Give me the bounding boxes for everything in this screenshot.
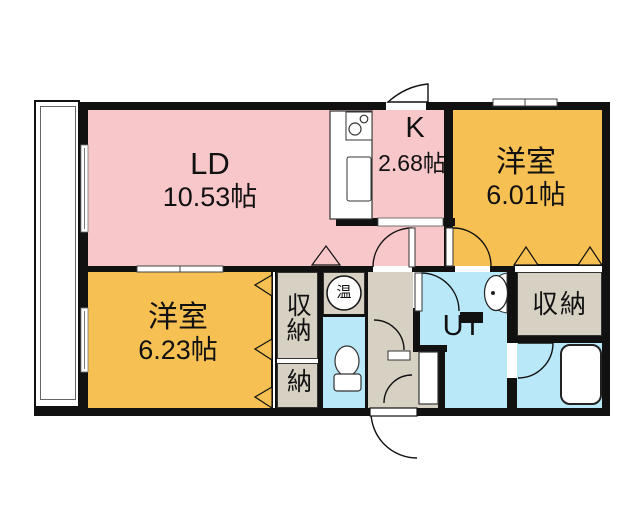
wall-top: [80, 102, 610, 110]
room-size-ld: 10.53帖: [130, 182, 290, 212]
label-bedroom-right: 洋室 6.01帖: [452, 146, 600, 210]
wall-hall-ut: [413, 308, 420, 348]
closet-left-front: [271, 272, 277, 408]
floor-plan: LD 10.53帖 K 2.68帖 洋室 6.01帖 洋室 6.23帖 収納 納…: [0, 0, 640, 512]
wall-right: [602, 102, 610, 416]
kitchen-service-door-gap: [386, 102, 426, 110]
label-ut: UT: [432, 310, 492, 342]
front-door-arc: [371, 412, 417, 458]
room-size-bedroom-left: 6.23帖: [96, 335, 260, 365]
floor-toilet: [323, 316, 365, 408]
wall-kitchen-stub-right: [443, 218, 455, 226]
floor-bathroom: [517, 343, 602, 408]
wall-left: [80, 102, 88, 416]
label-closet-left-tall: 収納: [284, 281, 309, 353]
wall-entrance-h: [413, 345, 447, 352]
wall-divider-a: [88, 266, 137, 272]
wall-heater-bottom: [323, 314, 365, 317]
room-name-bedroom-right: 洋室: [452, 146, 600, 180]
wall-divider-b: [223, 266, 373, 272]
room-name-ld: LD: [130, 147, 290, 182]
wall-x318: [318, 272, 323, 408]
wall-x365: [365, 272, 368, 408]
label-bedroom-left: 洋室 6.23帖: [96, 301, 260, 365]
label-kitchen: K: [385, 112, 445, 144]
wall-kitchen-stub-left: [336, 218, 378, 226]
wall-bottom: [34, 408, 610, 416]
label-ld: LD 10.53帖: [130, 147, 290, 212]
balcony-inner: [40, 106, 76, 400]
floor-entrance: [405, 348, 438, 408]
room-name-bedroom-left: 洋室: [96, 301, 260, 335]
closet-right-front-line: [514, 264, 602, 266]
label-water-heater: 温: [329, 285, 359, 302]
wall-entrance-v: [438, 352, 445, 408]
bathroom-door-gap: [507, 343, 517, 378]
wall-ut-bath: [507, 272, 517, 408]
kitchen-service-door-icon: [388, 84, 428, 102]
floor-ut-lower: [445, 348, 507, 408]
wall-closet-bath: [517, 336, 602, 343]
room-size-bedroom-right: 6.01帖: [452, 180, 600, 210]
label-kitchen-size: 2.68帖: [370, 151, 454, 177]
label-closet-right: 収納: [517, 290, 603, 319]
label-closet-left-small: 納: [283, 368, 316, 396]
